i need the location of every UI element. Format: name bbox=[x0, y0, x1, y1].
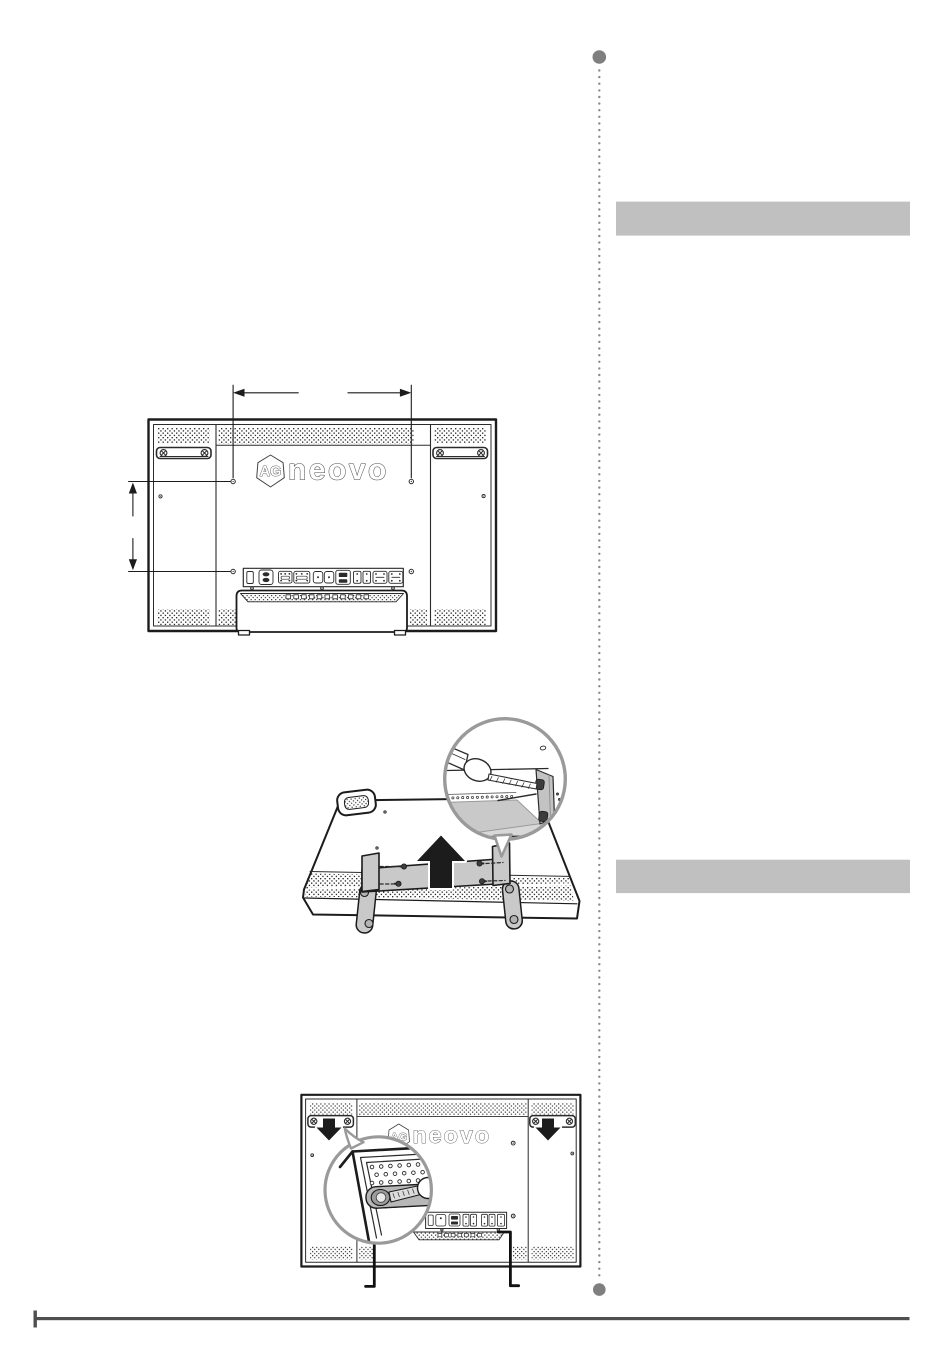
svg-text:neovo: neovo bbox=[288, 454, 389, 487]
svg-text:AG: AG bbox=[260, 464, 282, 480]
svg-text:neovo: neovo bbox=[412, 1122, 491, 1148]
